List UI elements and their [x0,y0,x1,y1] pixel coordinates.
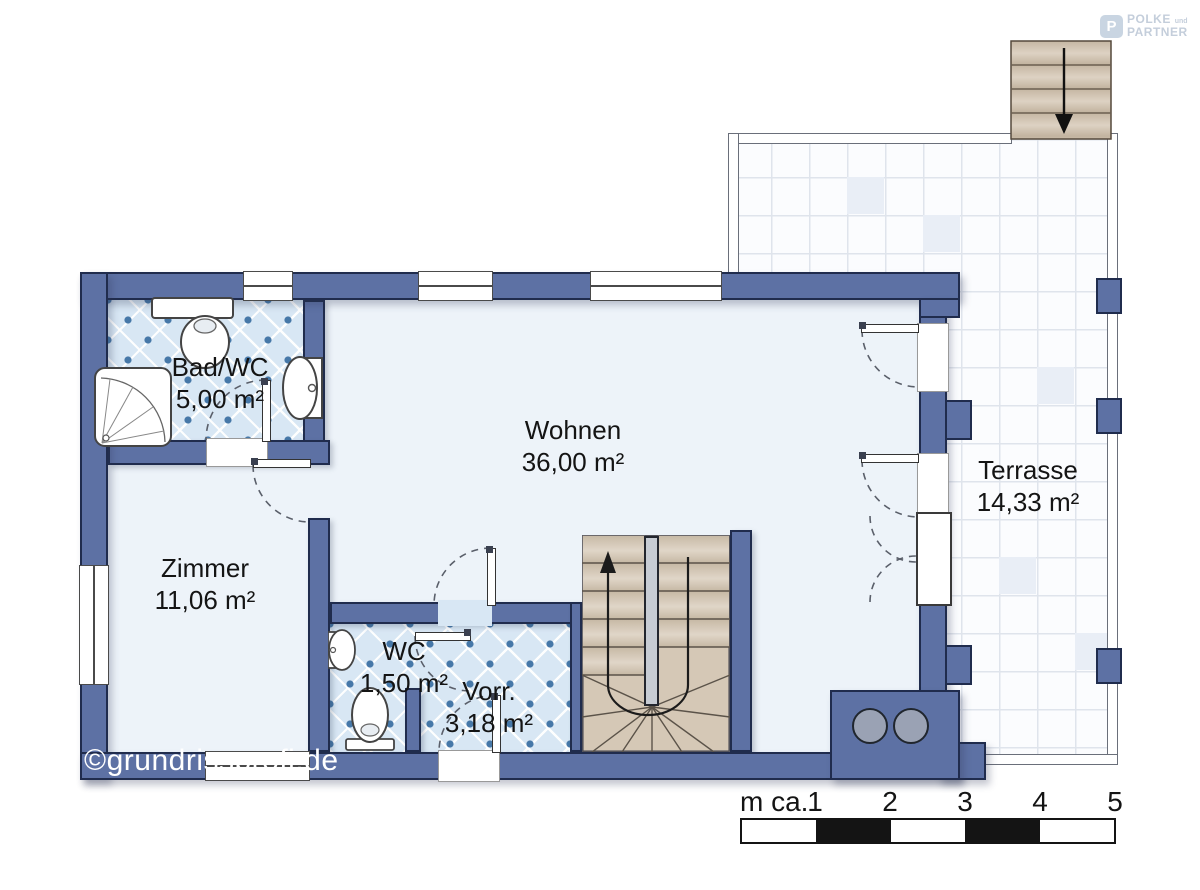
scale-segment [742,820,816,842]
terrace-tile-accent [847,177,884,214]
terrace-pier [1096,278,1122,314]
terrace-parapet-left [728,133,739,274]
room-label-terrasse: Terrasse 14,33 m² [977,455,1080,518]
logo-line1: POLKE [1127,12,1171,26]
room-name: Wohnen [522,415,625,447]
door-hinge [859,452,866,459]
scale-tick-5: 5 [1107,786,1123,818]
wall-exterior-left [80,272,108,780]
door-terrace1-swing [856,324,926,394]
logo-p-icon: P [1100,15,1123,38]
room-label-vorraum: Vorr. 3,18 m² [445,676,533,739]
window-top-wohnen-1 [418,271,493,301]
door-terrace2-leaf [861,454,919,463]
room-label-zimmer: Zimmer 11,06 m² [155,553,256,616]
room-label-badwc: Bad/WC 5,00 m² [172,352,269,415]
terrace-parapet-top [728,133,1012,144]
chimney-flue [893,708,929,744]
scale-tick-3: 3 [957,786,973,818]
scale-segment [1040,820,1114,842]
door-vorraum-leaf [487,548,496,606]
chimney-flue [852,708,888,744]
terrace-tile-accent [999,557,1036,594]
door-zimmer-leaf [253,459,311,468]
room-area: 14,33 m² [977,487,1080,519]
door-hinge [486,546,493,553]
room-name: Bad/WC [172,352,269,384]
wall-pier-top-right [919,298,960,318]
wall-stair-left [570,602,582,752]
terrace-pier [1096,398,1122,434]
door-terrace-main [916,512,952,606]
scale-tick-4: 4 [1032,786,1048,818]
door-hinge [251,458,258,465]
scale-bar: m ca. 1 2 3 4 5 [740,786,1116,842]
sink-bath [276,350,326,426]
room-name: WC [360,636,448,668]
interior-staircase [582,535,730,752]
scale-unit-label: m ca. [740,786,808,818]
terrace-tile-accent [923,215,960,252]
door-terrace1-leaf [861,324,919,333]
room-name: Zimmer [155,553,256,585]
room-label-wohnen: Wohnen 36,00 m² [522,415,625,478]
sink-wc [328,626,364,674]
wall-pier-right-2 [945,645,972,685]
watermark: ©grundrissprofi.de [84,744,339,778]
terrace-pier [1096,648,1122,684]
wall-pier-right-1 [945,400,972,440]
scale-segment [891,820,965,842]
logo-line1-suffix: und [1175,18,1188,25]
wall-zimmer-right [308,518,330,752]
room-area: 5,00 m² [172,384,269,416]
shower-tray [93,366,173,448]
room-area: 11,06 m² [155,585,256,617]
door-zimmer-swing [247,459,317,529]
door-hinge [859,322,866,329]
terrace-tile-accent [1037,367,1074,404]
company-logo: P POLKE und PARTNER [1100,14,1188,38]
scale-ticks: m ca. 1 2 3 4 5 [740,786,1116,818]
logo-wordmark: POLKE und PARTNER [1127,14,1188,38]
scale-segment [965,820,1039,842]
scale-segment [816,820,890,842]
room-name: Terrasse [977,455,1080,487]
wall-stair-right [730,530,752,752]
window-top-wohnen-2 [590,271,722,301]
logo-line2: PARTNER [1127,27,1188,38]
scale-bar-segments [740,818,1116,844]
scale-tick-1: 1 [807,786,823,818]
room-area: 3,18 m² [445,708,533,740]
scale-tick-2: 2 [882,786,898,818]
window-top-bath [243,271,293,301]
door-terrace-main-swing [848,512,918,606]
room-area: 36,00 m² [522,447,625,479]
exterior-stairs [1010,40,1112,140]
room-label-wc: WC 1,50 m² [360,636,448,699]
floorplan-canvas: Bad/WC 5,00 m² Zimmer 11,06 m² Wohnen 36… [0,0,1200,890]
room-name: Vorr. [445,676,533,708]
room-area: 1,50 m² [360,668,448,700]
door-hinge [464,629,471,636]
window-left-zimmer [79,565,109,685]
